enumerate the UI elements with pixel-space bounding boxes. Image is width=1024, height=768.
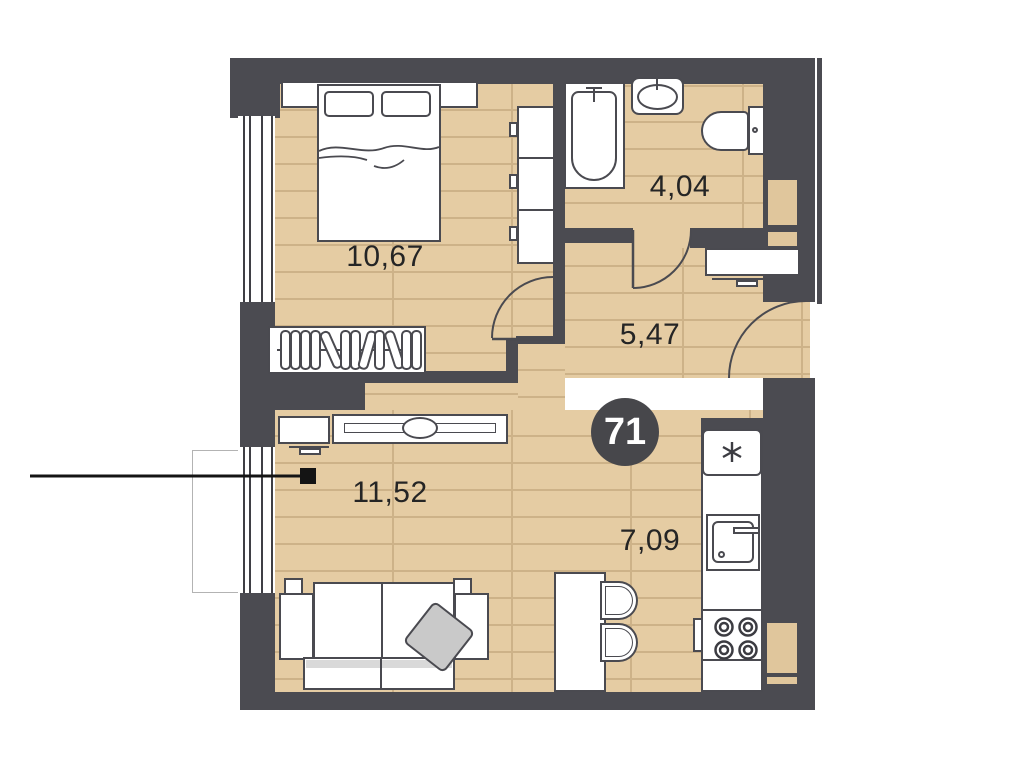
window-glazing-line <box>271 447 273 593</box>
living-room-window <box>238 447 275 593</box>
bedroom-area-label: 10,67 <box>320 240 450 274</box>
wall-outer-edge-line <box>817 58 822 304</box>
window-glazing-line <box>271 116 273 302</box>
tv-stand-oval <box>402 417 438 439</box>
wall-bedroom-door-stub <box>506 338 518 383</box>
toilet-bowl <box>701 111 749 151</box>
wall-left-lower <box>240 410 275 447</box>
stove-side-tab <box>693 618 703 652</box>
dining-table <box>554 572 606 692</box>
wardrobe-handle <box>509 226 518 241</box>
kitchen-area-label: 7,09 <box>585 524 715 558</box>
chair-seat <box>605 628 633 657</box>
window-glazing-line <box>261 447 263 593</box>
window-glazing-line <box>261 116 263 302</box>
sofa-front-divider <box>380 657 382 690</box>
shaft-niche-bottom-2 <box>767 677 797 684</box>
shaft-niche-top-2 <box>768 232 797 246</box>
window-glazing-line <box>243 447 245 593</box>
chair-seat <box>605 586 633 615</box>
tv-cabinet-foot <box>299 448 321 455</box>
kitchen-sink-drain <box>718 551 725 558</box>
hallway-console <box>705 248 800 276</box>
shaft-niche-bottom <box>767 623 797 673</box>
console-foot <box>736 280 758 287</box>
living-room-area-label: 11,52 <box>320 476 460 510</box>
bed-pillow-left <box>324 91 374 117</box>
kitchen-sink-faucet <box>733 527 760 534</box>
wall-top-left-corner <box>230 58 280 118</box>
unit-number-badge: 71 <box>591 398 659 466</box>
window-glazing-line <box>249 447 251 593</box>
bedroom-window <box>238 116 275 302</box>
hallway-area-label: 5,47 <box>585 318 715 352</box>
wall-living-top-block <box>240 383 365 410</box>
fridge <box>702 429 762 476</box>
stove <box>701 609 763 661</box>
sofa-armrest-left <box>279 593 314 660</box>
wall-left-bottom <box>240 592 275 692</box>
window-glazing-line <box>243 116 245 302</box>
corridor-floor-2 <box>518 344 565 410</box>
wardrobe-handle <box>509 174 518 189</box>
wall-bottom <box>240 692 815 710</box>
window-outer-projection <box>192 450 242 593</box>
bathtub-basin <box>571 91 617 181</box>
open-wardrobe-hanger-unit <box>268 326 426 374</box>
dining-chair <box>600 581 638 620</box>
wardrobe-handle <box>509 122 518 137</box>
window-glazing-line <box>249 116 251 302</box>
tv-cabinet <box>278 416 330 444</box>
bathroom-area-label: 4,04 <box>615 170 745 204</box>
floor-plan-page: { "plan": { "unit_number": "71", "type":… <box>0 0 1024 768</box>
wardrobe-cabinet <box>517 106 555 264</box>
wardrobe-shelf-line <box>517 209 555 211</box>
wardrobe-shelf-line <box>517 157 555 159</box>
sofa-seat-left <box>313 582 383 659</box>
shaft-niche-top <box>768 180 797 225</box>
bed-pillow-right <box>381 91 431 117</box>
wall-bathroom-bottom-left <box>565 228 633 243</box>
bathroom-door-threshold-floor <box>633 228 690 248</box>
sink-basin <box>637 84 678 110</box>
dining-chair <box>600 623 638 662</box>
toilet-flush-button <box>752 127 758 133</box>
